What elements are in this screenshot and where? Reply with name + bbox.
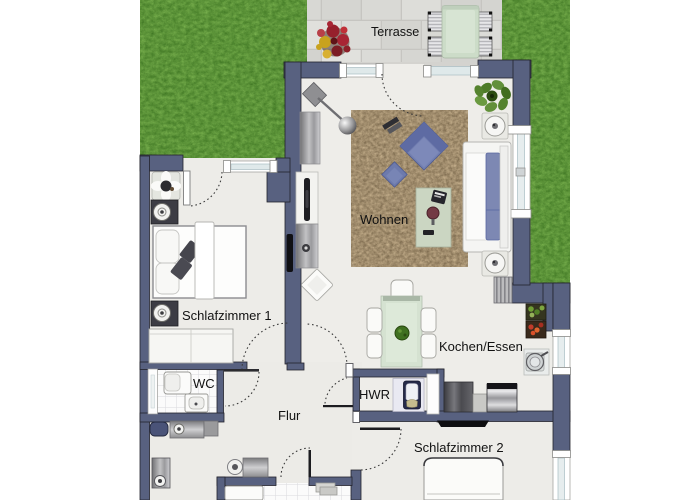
- svg-text:WC: WC: [193, 376, 215, 391]
- svg-text:Flur: Flur: [278, 408, 301, 423]
- svg-text:Wohnen: Wohnen: [360, 212, 408, 227]
- svg-text:HWR: HWR: [359, 387, 390, 402]
- svg-text:Kochen/Essen: Kochen/Essen: [439, 339, 523, 354]
- svg-text:Schlafzimmer 1: Schlafzimmer 1: [182, 308, 272, 323]
- svg-text:Schlafzimmer 2: Schlafzimmer 2: [414, 440, 504, 455]
- svg-text:Terrasse: Terrasse: [371, 25, 419, 39]
